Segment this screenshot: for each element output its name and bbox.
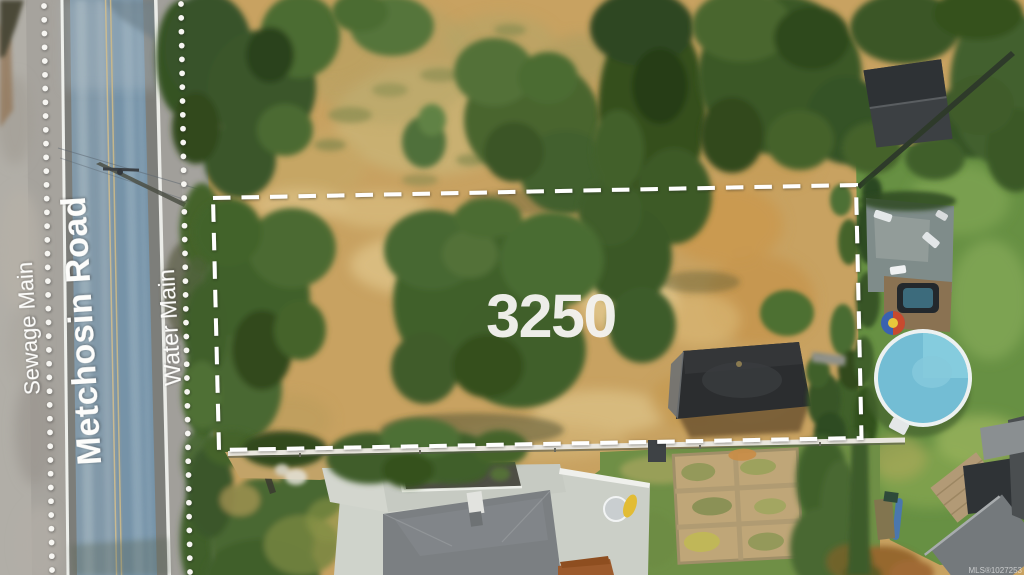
svg-text:MLS®1027253: MLS®1027253 — [969, 566, 1023, 575]
svg-text:3250: 3250 — [486, 282, 616, 350]
